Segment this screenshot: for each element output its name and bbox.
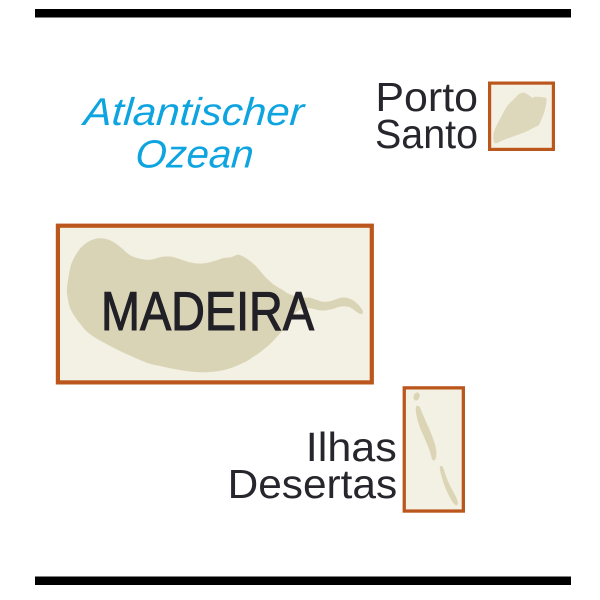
svg-text:Ozean: Ozean	[134, 133, 255, 177]
svg-text:Atlantischer: Atlantischer	[80, 91, 307, 134]
svg-text:Santo: Santo	[375, 111, 478, 157]
svg-text:Desertas: Desertas	[228, 461, 398, 507]
svg-text:MADEIRA: MADEIRA	[101, 280, 314, 342]
